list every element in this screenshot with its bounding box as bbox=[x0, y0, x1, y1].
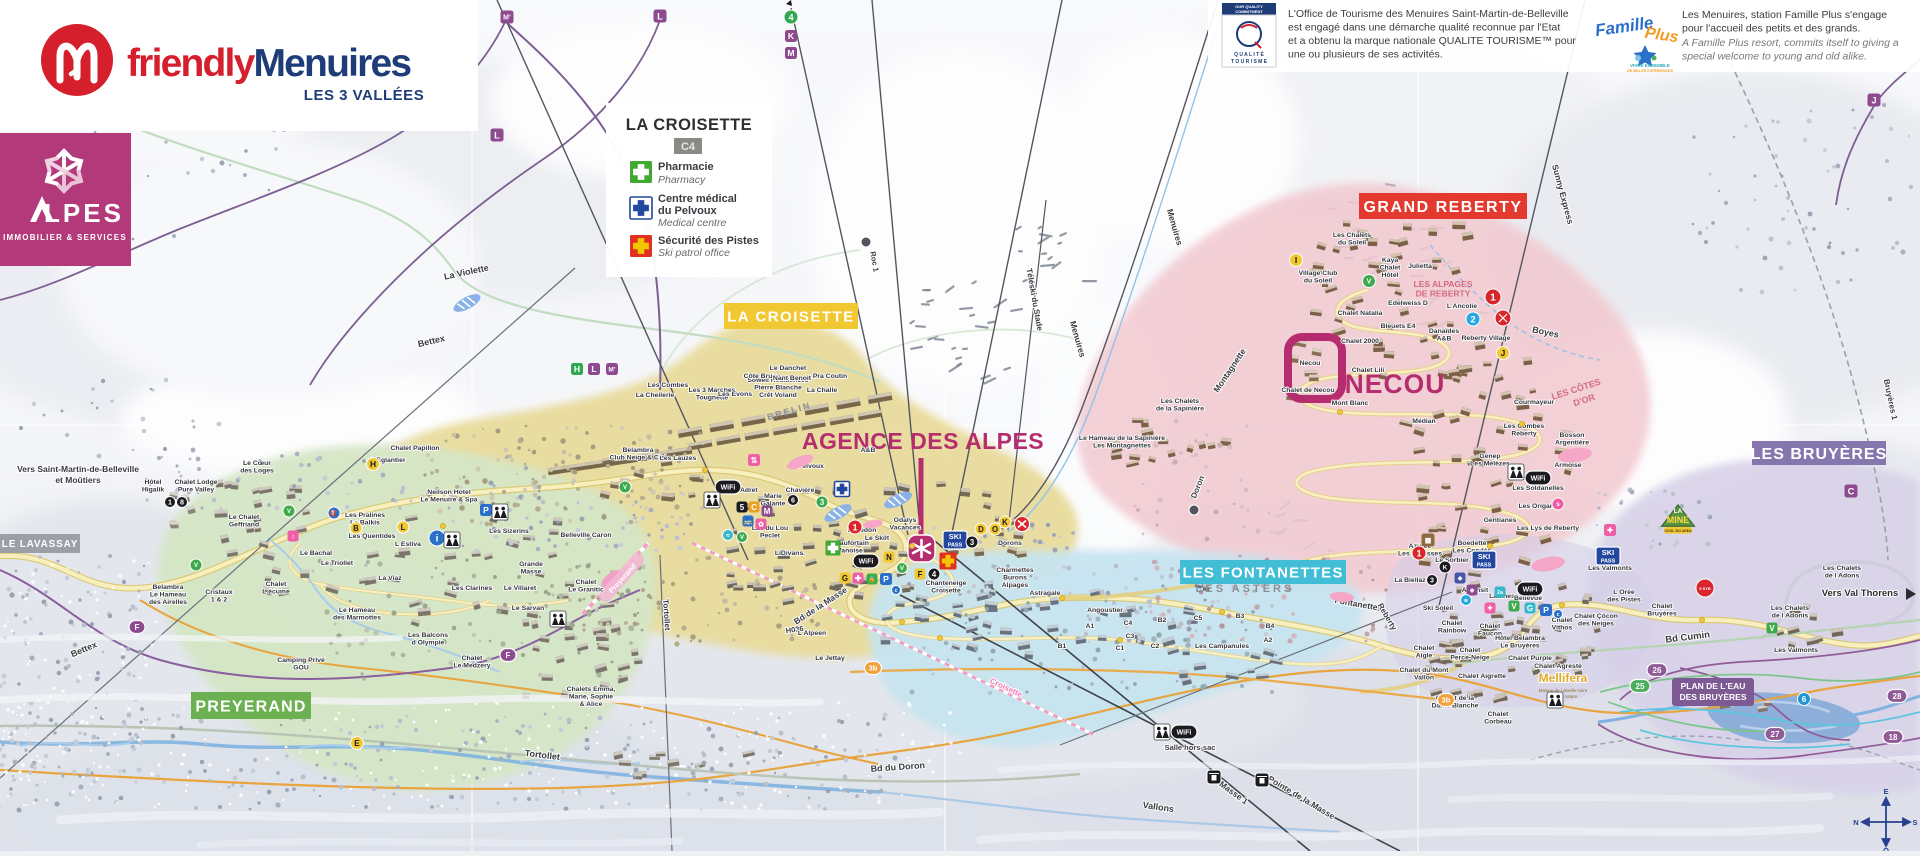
svg-text:V: V bbox=[1367, 279, 1372, 286]
svg-text:Crêt Voland: Crêt Voland bbox=[759, 392, 797, 399]
svg-text:Neilson Hotel: Neilson Hotel bbox=[427, 489, 471, 496]
svg-text:3: 3 bbox=[1430, 577, 1434, 585]
svg-text:Masse: Masse bbox=[521, 569, 542, 576]
svg-text:L'Office de Tourisme des Menui: L'Office de Tourisme des Menuires Saint-… bbox=[1288, 8, 1569, 20]
svg-text:C4: C4 bbox=[1124, 620, 1133, 627]
svg-text:Les Campanules: Les Campanules bbox=[1195, 643, 1249, 650]
svg-text:Reberty Village: Reberty Village bbox=[1462, 335, 1511, 342]
svg-text:LE LAVASSAY: LE LAVASSAY bbox=[2, 539, 78, 550]
svg-text:MINE: MINE bbox=[1667, 515, 1690, 525]
svg-text:Le Hameau de la Sapinière: Le Hameau de la Sapinière bbox=[1079, 435, 1165, 442]
svg-text:N: N bbox=[886, 553, 892, 562]
svg-text:Le Menuire & Spa: Le Menuire & Spa bbox=[420, 497, 477, 504]
svg-text:LiDivans.: LiDivans. bbox=[775, 550, 805, 557]
svg-text:6: 6 bbox=[791, 497, 795, 505]
svg-text:GRAND REBERTY: GRAND REBERTY bbox=[1363, 199, 1522, 216]
svg-text:Chalet: Chalet bbox=[266, 581, 288, 588]
svg-text:Grande: Grande bbox=[519, 561, 543, 568]
svg-text:Vers Val Thorens: Vers Val Thorens bbox=[1822, 588, 1899, 599]
svg-text:Village Club: Village Club bbox=[1299, 270, 1338, 277]
svg-text:V: V bbox=[1511, 602, 1517, 611]
svg-text:Charmettes: Charmettes bbox=[996, 567, 1034, 574]
svg-text:Chalet Agrestè: Chalet Agrestè bbox=[1534, 663, 1582, 670]
svg-text:Chalet: Chalet bbox=[1380, 265, 1402, 272]
svg-text:Les Valmonts: Les Valmonts bbox=[1588, 565, 1632, 572]
svg-text:C4: C4 bbox=[681, 141, 696, 153]
svg-text:Nant Benoit: Nant Benoit bbox=[773, 375, 812, 382]
svg-text:de l Adons: de l Adons bbox=[1825, 573, 1860, 580]
svg-text:28: 28 bbox=[1893, 692, 1902, 701]
svg-text:Le Medzery: Le Medzery bbox=[453, 663, 490, 670]
svg-text:La Biellaz: La Biellaz bbox=[1394, 577, 1426, 584]
svg-text:des Neiges: des Neiges bbox=[1578, 621, 1614, 628]
svg-text:Mellifera: Mellifera bbox=[1539, 671, 1588, 685]
svg-text:A&B: A&B bbox=[1437, 336, 1452, 343]
svg-text:⇅: ⇅ bbox=[751, 456, 758, 465]
svg-text:Le Hameau: Le Hameau bbox=[150, 592, 186, 599]
svg-text:M: M bbox=[764, 507, 771, 516]
svg-text:Chalet: Chalet bbox=[1460, 647, 1482, 654]
svg-text:B4: B4 bbox=[1266, 623, 1275, 630]
svg-text:Chalet Lodge: Chalet Lodge bbox=[174, 479, 217, 486]
svg-text:🚌: 🚌 bbox=[744, 519, 753, 526]
svg-text:Ski Soleil: Ski Soleil bbox=[1423, 605, 1453, 612]
svg-text:Gentianes: Gentianes bbox=[1484, 517, 1517, 524]
svg-text:Bleuets E4: Bleuets E4 bbox=[1381, 323, 1416, 330]
svg-text:c: c bbox=[1557, 612, 1560, 618]
svg-text:i: i bbox=[436, 534, 439, 545]
svg-text:de l Adonis: de l Adonis bbox=[1772, 613, 1809, 620]
svg-text:◆: ◆ bbox=[1457, 575, 1463, 582]
svg-text:AGENCE DES ALPES: AGENCE DES ALPES bbox=[802, 428, 1044, 454]
svg-text:A2: A2 bbox=[1264, 637, 1273, 644]
svg-text:F: F bbox=[918, 570, 923, 579]
svg-text:DE REBERTY: DE REBERTY bbox=[1416, 289, 1471, 299]
svg-text:Chalet: Chalet bbox=[1652, 603, 1674, 610]
svg-text:WiFi: WiFi bbox=[1523, 587, 1538, 594]
svg-text:WiFi: WiFi bbox=[721, 485, 736, 492]
svg-text:27: 27 bbox=[1771, 730, 1780, 739]
svg-text:P: P bbox=[883, 574, 889, 584]
svg-text:Hôtel Belambra: Hôtel Belambra bbox=[1495, 635, 1545, 642]
svg-text:Le Triollet: Le Triollet bbox=[321, 560, 354, 567]
svg-text:LES ASTERS: LES ASTERS bbox=[1196, 583, 1295, 595]
svg-text:✚: ✚ bbox=[855, 574, 862, 583]
svg-text:LA CROISETTE: LA CROISETTE bbox=[626, 116, 752, 134]
svg-text:Higalik: Higalik bbox=[142, 487, 165, 494]
svg-text:Centre médical: Centre médical bbox=[658, 193, 737, 205]
svg-text:Le Danchet: Le Danchet bbox=[770, 365, 807, 372]
svg-text:Salle hors-sac: Salle hors-sac bbox=[1165, 743, 1216, 752]
svg-text:Vallon: Vallon bbox=[1414, 675, 1434, 682]
svg-text:Bruyères: Bruyères bbox=[1647, 611, 1677, 618]
svg-text:Les Lys de Reberty: Les Lys de Reberty bbox=[1517, 525, 1579, 532]
svg-text:A1: A1 bbox=[1086, 623, 1095, 630]
svg-text:≋: ≋ bbox=[1464, 598, 1468, 604]
svg-text:PLAN DE L'EAU: PLAN DE L'EAU bbox=[1681, 681, 1746, 691]
svg-text:Les Valmonts: Les Valmonts bbox=[1774, 647, 1818, 654]
svg-text:VIVRE ENSEMBLE: VIVRE ENSEMBLE bbox=[1630, 63, 1670, 68]
svg-text:K: K bbox=[1443, 564, 1448, 571]
svg-text:✚: ✚ bbox=[1487, 605, 1492, 612]
svg-text:⛽: ⛽ bbox=[330, 509, 338, 517]
svg-text:du Soleil: du Soleil bbox=[1304, 278, 1332, 285]
svg-text:La Viaz: La Viaz bbox=[378, 575, 402, 582]
svg-text:E: E bbox=[1883, 787, 1888, 796]
svg-text:G: G bbox=[842, 574, 848, 583]
svg-text:Les Mélèzes: Les Mélèzes bbox=[1470, 461, 1510, 468]
svg-text:H: H bbox=[574, 364, 580, 374]
svg-text:COOL SKI AREA: COOL SKI AREA bbox=[1664, 529, 1692, 533]
svg-text:Le Villaret: Le Villaret bbox=[504, 585, 537, 592]
svg-text:LES ALPAGES: LES ALPAGES bbox=[1413, 279, 1472, 289]
svg-text:C2: C2 bbox=[1151, 643, 1160, 650]
svg-text:DES BRUYÈRES: DES BRUYÈRES bbox=[1679, 692, 1746, 702]
svg-text:D: D bbox=[978, 525, 984, 534]
svg-text:SKI: SKI bbox=[1602, 548, 1615, 557]
svg-text:Geffriand: Geffriand bbox=[229, 522, 259, 529]
svg-text:SKI: SKI bbox=[1478, 552, 1491, 561]
svg-text:Chanteneige: Chanteneige bbox=[926, 580, 967, 587]
svg-text:Chalet Papillon: Chalet Papillon bbox=[390, 445, 439, 452]
svg-text:Marie, Sophie: Marie, Sophie bbox=[569, 694, 613, 701]
svg-text:LA: LA bbox=[1674, 508, 1683, 515]
svg-text:WiFi: WiFi bbox=[859, 559, 874, 566]
svg-text:Chalet 2000: Chalet 2000 bbox=[1341, 338, 1379, 345]
svg-text:Kaya: Kaya bbox=[1382, 257, 1398, 264]
svg-text:2a: 2a bbox=[1497, 590, 1504, 596]
svg-text:PREYERAND: PREYERAND bbox=[195, 698, 306, 715]
svg-text:Chalet Purple: Chalet Purple bbox=[1508, 655, 1552, 662]
svg-text:Les Chalets: Les Chalets bbox=[1823, 565, 1861, 572]
svg-text:L: L bbox=[494, 130, 500, 140]
svg-text:SKI: SKI bbox=[949, 532, 962, 541]
svg-text:c: c bbox=[895, 588, 898, 594]
svg-text:des Loges: des Loges bbox=[240, 468, 274, 475]
svg-text:1: 1 bbox=[1416, 548, 1421, 558]
svg-text:1: 1 bbox=[168, 499, 172, 507]
svg-text:Hôtel: Hôtel bbox=[1382, 272, 1399, 279]
svg-text:du Pelvoux: du Pelvoux bbox=[658, 205, 718, 217]
svg-text:Angoustier: Angoustier bbox=[1087, 607, 1123, 614]
svg-text:Marie: Marie bbox=[764, 493, 782, 500]
svg-text:P: P bbox=[483, 505, 489, 515]
svg-text:G: G bbox=[1527, 604, 1533, 613]
svg-text:J: J bbox=[1871, 95, 1876, 105]
svg-text:M’: M’ bbox=[608, 366, 615, 373]
svg-text:Club Neige & Ciel: Club Neige & Ciel bbox=[610, 455, 667, 462]
svg-text:Belleville Caron: Belleville Caron bbox=[561, 532, 612, 539]
svg-text:C5: C5 bbox=[1194, 615, 1203, 622]
svg-text:Les Clarines: Les Clarines bbox=[452, 585, 493, 592]
svg-text:special welcome to young and o: special welcome to young and old alike. bbox=[1682, 51, 1867, 63]
svg-text:Bosson: Bosson bbox=[1560, 432, 1585, 439]
svg-text:friendlyMenuires: friendlyMenuires bbox=[127, 42, 411, 85]
svg-text:K: K bbox=[788, 31, 795, 41]
svg-text:Rainbow: Rainbow bbox=[1438, 628, 1467, 635]
svg-text:Q U A L I T É: Q U A L I T É bbox=[1234, 50, 1264, 58]
svg-text:Chalet Natalia: Chalet Natalia bbox=[1338, 310, 1383, 317]
svg-text:Le Hameau: Le Hameau bbox=[339, 607, 375, 614]
svg-text:3b: 3b bbox=[1442, 696, 1451, 705]
svg-text:Dorons: Dorons bbox=[998, 540, 1022, 547]
svg-text:Alpages: Alpages bbox=[1002, 582, 1029, 589]
svg-text:T O U R I S M E: T O U R I S M E bbox=[1231, 59, 1268, 65]
svg-text:et Moûtiers: et Moûtiers bbox=[55, 475, 101, 485]
svg-text:Pharmacy: Pharmacy bbox=[658, 174, 706, 186]
svg-text:O: O bbox=[992, 525, 998, 534]
svg-text:18: 18 bbox=[1889, 733, 1898, 742]
svg-text:WiFi: WiFi bbox=[1177, 730, 1192, 737]
svg-text:Argentière: Argentière bbox=[1555, 440, 1589, 447]
svg-text:IMMOBILIER & SERVICES: IMMOBILIER & SERVICES bbox=[3, 233, 127, 242]
svg-text:Les Sizerins: Les Sizerins bbox=[489, 528, 529, 535]
svg-text:A&B: A&B bbox=[861, 447, 876, 454]
svg-text:Chalets Emma,: Chalets Emma, bbox=[567, 686, 616, 693]
svg-text:Danaïdes: Danaïdes bbox=[1429, 328, 1459, 335]
svg-text:V: V bbox=[1769, 624, 1775, 633]
svg-text:N: N bbox=[1853, 818, 1858, 827]
svg-text:L: L bbox=[401, 523, 406, 532]
svg-text:L: L bbox=[591, 364, 596, 374]
svg-text:◈: ◈ bbox=[1469, 587, 1475, 594]
svg-text:Mont Blanc: Mont Blanc bbox=[1332, 400, 1369, 407]
svg-text:V: V bbox=[194, 563, 198, 569]
svg-text:F: F bbox=[135, 623, 140, 632]
svg-text:pour l'accueil des petits et d: pour l'accueil des petits et des grands. bbox=[1682, 23, 1860, 35]
svg-text:Genep: Genep bbox=[1479, 453, 1500, 460]
svg-text:8: 8 bbox=[180, 499, 184, 507]
svg-text:& Alice: & Alice bbox=[580, 701, 603, 708]
svg-text:Chalet: Chalet bbox=[1552, 617, 1574, 624]
svg-text:1 & 2: 1 & 2 bbox=[211, 597, 227, 604]
svg-text:🔒: 🔒 bbox=[868, 575, 875, 583]
svg-text:Le Bruyères: Le Bruyères bbox=[1500, 643, 1540, 650]
svg-text:✚: ✚ bbox=[1607, 527, 1613, 535]
svg-text:des Pistes: des Pistes bbox=[1607, 597, 1641, 604]
svg-text:Belambra: Belambra bbox=[153, 584, 184, 591]
svg-text:La Cheilerie: La Cheilerie bbox=[636, 392, 675, 399]
svg-text:Pra Coutin: Pra Coutin bbox=[813, 373, 847, 380]
svg-text:Médian: Médian bbox=[1412, 418, 1435, 425]
svg-text:2: 2 bbox=[1470, 314, 1475, 324]
svg-text:Les Balcons: Les Balcons bbox=[408, 632, 448, 639]
svg-text:Maison de l abeille noire: Maison de l abeille noire bbox=[1539, 688, 1588, 693]
svg-text:Chalet de Necou: Chalet de Necou bbox=[1281, 387, 1334, 394]
svg-text:Les Pralines: Les Pralines bbox=[345, 512, 385, 519]
svg-text:Pure Valley: Pure Valley bbox=[178, 487, 214, 494]
svg-text:4: 4 bbox=[932, 570, 937, 579]
svg-text:Les Menuires, station Famille: Les Menuires, station Famille Plus s'eng… bbox=[1682, 9, 1887, 21]
svg-text:Medical centre: Medical centre bbox=[658, 217, 726, 229]
svg-text:V: V bbox=[900, 566, 904, 572]
svg-text:V: V bbox=[287, 509, 291, 515]
svg-text:Chalet Lili: Chalet Lili bbox=[1352, 367, 1385, 374]
svg-text:L Alpeen: L Alpeen bbox=[798, 630, 826, 637]
svg-text:C: C bbox=[751, 503, 757, 512]
svg-text:Sécurité des Pistes: Sécurité des Pistes bbox=[658, 235, 759, 247]
svg-text:P: P bbox=[1543, 605, 1549, 615]
svg-text:B1: B1 bbox=[1058, 643, 1067, 650]
svg-text:PASS: PASS bbox=[948, 543, 963, 549]
svg-text:du Soleil: du Soleil bbox=[1338, 240, 1366, 247]
svg-text:S: S bbox=[1912, 818, 1917, 827]
svg-text:Le Sarvan: Le Sarvan bbox=[512, 605, 545, 612]
svg-text:M: M bbox=[787, 48, 794, 58]
svg-text:Boedette: Boedette bbox=[1457, 540, 1486, 547]
svg-text:V: V bbox=[740, 535, 744, 541]
svg-text:DE MILLES EXPÉRIENCES: DE MILLES EXPÉRIENCES bbox=[1627, 68, 1673, 73]
svg-text:B3: B3 bbox=[1236, 613, 1245, 620]
svg-text:A Famille Plus resort, commits: A Famille Plus resort, commits itself to… bbox=[1681, 37, 1899, 49]
svg-text:Les Lauzes: Les Lauzes bbox=[660, 455, 697, 462]
svg-text:Ski patrol office: Ski patrol office bbox=[658, 247, 730, 259]
svg-text:M’: M’ bbox=[503, 15, 511, 22]
svg-text:H: H bbox=[370, 459, 376, 469]
svg-text:Les Chalets: Les Chalets bbox=[1333, 232, 1371, 239]
svg-text:Camping Privé: Camping Privé bbox=[277, 657, 325, 664]
svg-text:Astragale: Astragale bbox=[1030, 590, 1061, 597]
svg-text:Chalet Aigrette: Chalet Aigrette bbox=[1458, 673, 1506, 680]
svg-text:LES FONTANETTES: LES FONTANETTES bbox=[1182, 564, 1343, 581]
svg-text:Le Bachal: Le Bachal bbox=[300, 550, 332, 557]
svg-text:Corbeau: Corbeau bbox=[1484, 719, 1512, 726]
svg-text:L: L bbox=[657, 11, 663, 21]
svg-text:LES 3 VALLÉES: LES 3 VALLÉES bbox=[304, 87, 424, 104]
svg-text:La Challe: La Challe bbox=[807, 387, 837, 394]
svg-text:Le Cœur: Le Cœur bbox=[243, 460, 271, 467]
svg-text:O: O bbox=[1883, 846, 1889, 851]
svg-text:5: 5 bbox=[740, 503, 745, 512]
svg-text:6: 6 bbox=[1802, 694, 1807, 704]
svg-text:Burons: Burons bbox=[1003, 575, 1027, 582]
svg-text:B: B bbox=[353, 524, 359, 533]
svg-text:Chalet: Chalet bbox=[1414, 645, 1436, 652]
svg-text:Les Montagnettes: Les Montagnettes bbox=[1093, 443, 1151, 450]
svg-text:Julietta: Julietta bbox=[1408, 263, 1432, 270]
svg-text:Armoise: Armoise bbox=[1554, 462, 1581, 469]
svg-text:Le Skilt: Le Skilt bbox=[865, 535, 890, 542]
svg-text:LPES: LPES bbox=[44, 198, 124, 228]
svg-text:1: 1 bbox=[1490, 293, 1496, 304]
svg-text:LA CROISETTE: LA CROISETTE bbox=[727, 308, 854, 325]
svg-text:Chalet: Chalet bbox=[1442, 620, 1464, 627]
svg-text:B2: B2 bbox=[1158, 617, 1167, 624]
svg-text:GOU: GOU bbox=[293, 665, 309, 672]
svg-text:Edelweiss D: Edelweiss D bbox=[1388, 300, 1428, 307]
svg-text:Le Chalet: Le Chalet bbox=[229, 514, 260, 521]
svg-text:PASS: PASS bbox=[1477, 563, 1492, 569]
svg-text:Croisette: Croisette bbox=[931, 588, 961, 595]
svg-text:Reberty: Reberty bbox=[1511, 431, 1537, 438]
svg-text:1: 1 bbox=[852, 522, 857, 532]
svg-text:Odalys: Odalys bbox=[894, 517, 917, 524]
svg-text:Chalet: Chalet bbox=[1488, 711, 1510, 718]
svg-text:Chavière: Chavière bbox=[786, 487, 815, 494]
svg-text:Courmayeur: Courmayeur bbox=[1514, 399, 1554, 406]
svg-text:Pierre Blanche: Pierre Blanche bbox=[754, 385, 802, 392]
svg-text:Belambra: Belambra bbox=[623, 447, 654, 454]
svg-text:Chalet: Chalet bbox=[1480, 623, 1502, 630]
svg-text:Vithos: Vithos bbox=[1552, 625, 1573, 632]
svg-text:Vacances: Vacances bbox=[890, 525, 921, 532]
svg-text:Les Evons: Les Evons bbox=[718, 391, 752, 398]
svg-text:PASS: PASS bbox=[1601, 559, 1616, 565]
svg-text:E: E bbox=[354, 738, 360, 748]
svg-text:J: J bbox=[1501, 348, 1506, 358]
svg-text:d Olympie: d Olympie bbox=[412, 640, 445, 647]
svg-text:C1: C1 bbox=[1116, 645, 1125, 652]
svg-text:3b: 3b bbox=[869, 664, 878, 673]
svg-text:Chalet du Mont: Chalet du Mont bbox=[1399, 667, 1449, 674]
svg-text:Necou: Necou bbox=[1300, 360, 1321, 367]
svg-text:Aigle: Aigle bbox=[1416, 653, 1433, 660]
svg-text:Le Granitic: Le Granitic bbox=[568, 587, 604, 594]
svg-text:V: V bbox=[623, 485, 627, 491]
svg-text:L Ancolie: L Ancolie bbox=[1447, 303, 1477, 310]
svg-text:≈: ≈ bbox=[726, 533, 730, 540]
svg-text:C3: C3 bbox=[1126, 633, 1135, 640]
svg-text:Les Chalets: Les Chalets bbox=[1771, 605, 1809, 612]
svg-text:I: I bbox=[1295, 255, 1297, 265]
svg-text:K: K bbox=[1002, 518, 1008, 527]
svg-text:Les Soldanelles: Les Soldanelles bbox=[1512, 485, 1564, 492]
svg-text:Chalet Çöcon: Chalet Çöcon bbox=[1574, 613, 1618, 620]
svg-text:Cristaux: Cristaux bbox=[205, 589, 232, 596]
svg-text:Le Jettay: Le Jettay bbox=[815, 655, 845, 662]
svg-text:est engagé dans une démarche q: est engagé dans une démarche qualité rec… bbox=[1288, 22, 1560, 34]
svg-text:5 SYB: 5 SYB bbox=[1699, 586, 1711, 591]
svg-text:✿: ✿ bbox=[758, 521, 764, 529]
svg-text:des Airelles: des Airelles bbox=[149, 599, 187, 606]
svg-text:3: 3 bbox=[970, 538, 975, 547]
svg-text:↕: ↕ bbox=[291, 534, 295, 541]
svg-text:26: 26 bbox=[1653, 666, 1662, 675]
svg-text:3: 3 bbox=[820, 498, 825, 507]
svg-text:Les Combes: Les Combes bbox=[648, 382, 689, 389]
svg-text:L écume: L écume bbox=[262, 589, 290, 596]
svg-text:L Orée: L Orée bbox=[1613, 589, 1635, 596]
svg-text:C: C bbox=[1848, 486, 1855, 496]
svg-text:Peclet: Peclet bbox=[760, 533, 781, 540]
svg-text:WiFi: WiFi bbox=[1531, 476, 1546, 483]
svg-text:et a obtenu la marque national: et a obtenu la marque nationale QUALITE … bbox=[1288, 35, 1576, 47]
svg-text:COMMITMENT: COMMITMENT bbox=[1235, 9, 1263, 14]
svg-text:LES BRUYÈRES: LES BRUYÈRES bbox=[1751, 444, 1887, 463]
svg-text:de la Sapinière: de la Sapinière bbox=[1156, 406, 1204, 413]
svg-text:Hôtel: Hôtel bbox=[145, 479, 162, 486]
svg-text:une ou plusieurs de ses activi: une ou plusieurs de ses activités. bbox=[1288, 49, 1443, 61]
svg-text:Les Chalets: Les Chalets bbox=[1161, 398, 1199, 405]
svg-text:Perce-Neige: Perce-Neige bbox=[1450, 655, 1490, 662]
svg-text:des Marmottes: des Marmottes bbox=[333, 615, 381, 622]
svg-text:Pharmacie: Pharmacie bbox=[658, 161, 714, 173]
svg-text:25: 25 bbox=[1636, 682, 1645, 691]
svg-text:Vers Saint-Martin-de-Bellevill: Vers Saint-Martin-de-Belleville bbox=[17, 464, 139, 474]
svg-text:▦: ▦ bbox=[1425, 538, 1432, 545]
svg-text:L Estiva: L Estiva bbox=[395, 541, 421, 548]
svg-text:F: F bbox=[506, 651, 511, 660]
svg-text:Chalet: Chalet bbox=[576, 579, 598, 586]
svg-text:Chalet: Chalet bbox=[462, 655, 484, 662]
